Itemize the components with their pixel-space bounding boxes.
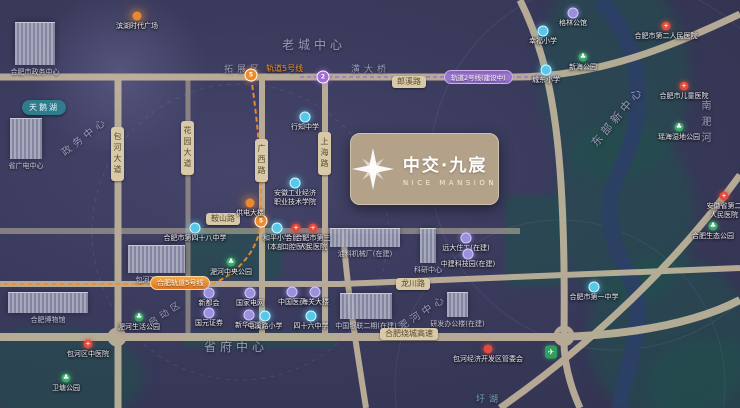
hospital-icon[interactable]: + [84, 340, 93, 349]
commercial-icon[interactable] [246, 199, 255, 208]
building-illustration: 中国银联二期(在建) [340, 293, 392, 319]
building-label: 合肥市政务中心 [11, 67, 60, 77]
residential-icon[interactable] [245, 288, 256, 299]
building-label: 合肥博物馆 [31, 315, 66, 325]
park-icon[interactable]: ♣ [709, 222, 718, 231]
compass-star-icon [352, 148, 394, 190]
poi-label: 淝河中央公园 [210, 268, 252, 277]
road-name-tag: 合肥绕城高速 [380, 328, 438, 340]
lake-label: 天鹅湖 [22, 100, 66, 115]
poi-label: 格林公馆 [559, 19, 587, 28]
building-illustration: 合肥市政务中心 [15, 22, 55, 65]
road-name-tag-vertical: 广西路 [255, 139, 268, 182]
building-illustration: 包河万达广场 [128, 245, 185, 273]
area-label: 圩湖 [476, 392, 502, 405]
school-icon[interactable] [541, 65, 552, 76]
poi-label: 卫塘公园 [52, 384, 80, 393]
school-icon[interactable] [300, 112, 311, 123]
school-icon[interactable] [538, 26, 549, 37]
park-icon[interactable]: ♣ [135, 313, 144, 322]
metro-station-icon[interactable]: 5 [245, 69, 258, 82]
park-icon[interactable]: ♣ [227, 258, 236, 267]
poi-label: 瑶海湿地公园 [658, 133, 700, 142]
road-name-tag-vertical: 花园大道 [181, 121, 194, 175]
park-icon[interactable]: ♣ [675, 123, 684, 132]
poi-label: 包河经济开发区管委会 [453, 355, 523, 364]
building-illustration: 合肥博物馆 [8, 292, 88, 313]
school-icon[interactable] [290, 178, 301, 189]
residential-icon[interactable] [204, 288, 215, 299]
school-icon[interactable] [589, 282, 600, 293]
poi-label: 行知中学 [291, 123, 319, 132]
poi-label: 合肥市第三人民医院 [296, 234, 331, 252]
poi-label: 滨湖时代广场 [116, 22, 158, 31]
commercial-icon[interactable] [133, 12, 142, 21]
poi-label: 国元证券 [195, 319, 223, 328]
poi-label: 合肥市儿童医院 [660, 92, 709, 101]
poi-label: 合肥市第四十八中学 [164, 234, 227, 243]
building-label: 研发办公楼(在建) [430, 319, 484, 329]
building-label: 油料机械厂(在建) [338, 249, 392, 259]
hospital-icon[interactable]: + [680, 82, 689, 91]
sign-icon[interactable]: ✈ [545, 346, 557, 359]
building-label: 科研中心 [414, 265, 442, 275]
residential-icon[interactable] [463, 249, 474, 260]
hospital-icon[interactable]: + [720, 192, 729, 201]
poi-label: 中建科技园(在建) [441, 260, 495, 269]
poi-label: 合肥生态公园 [692, 232, 734, 241]
road-name-tag-vertical: 上海路 [318, 132, 331, 175]
location-map: 中交·九宸 NICE MANSION 天鹅湖 老城中心拓展区潢大桥政务中心省府中… [0, 0, 740, 408]
poi-label: 淝河生活公园 [118, 323, 160, 332]
residential-icon[interactable] [204, 308, 215, 319]
project-logo-card[interactable]: 中交·九宸 NICE MANSION [350, 133, 499, 205]
poi-label: 供电大楼 [236, 209, 264, 218]
park-icon[interactable]: ♣ [579, 53, 588, 62]
residential-icon[interactable] [461, 233, 472, 244]
poi-label: 安徽工业经济职业技术学院 [274, 189, 316, 207]
poi-label: 新都会 [199, 299, 220, 308]
poi-label: 包河区中医院 [67, 350, 109, 359]
poi-label: 合肥市第二人民医院 [635, 32, 698, 41]
poi-label: 安徽省第二人民医院 [707, 202, 740, 220]
metro-station-icon[interactable]: 2 [317, 71, 330, 84]
school-icon[interactable] [306, 311, 317, 322]
gov-icon[interactable] [484, 345, 493, 354]
school-icon[interactable] [190, 223, 201, 234]
area-label: 潢大桥 [351, 62, 390, 75]
hospital-icon[interactable]: + [292, 224, 301, 233]
building-illustration: 科研中心 [420, 228, 436, 263]
residential-icon[interactable] [568, 8, 579, 19]
poi-label: 合肥市第一中学 [570, 293, 619, 302]
poi-label: 四十六中学 [294, 322, 329, 331]
poi-label: 幸福小学 [529, 37, 557, 46]
school-icon[interactable] [272, 223, 283, 234]
project-name-en: NICE MANSION [403, 179, 497, 187]
hospital-icon[interactable]: + [662, 22, 671, 31]
building-illustration: 研发办公楼(在建) [447, 292, 468, 317]
residential-icon[interactable] [310, 287, 321, 298]
poi-label: 城东小学 [532, 76, 560, 85]
road-name-tag: 龙川路 [396, 278, 430, 290]
road-name-tag: 鞍山路 [206, 213, 240, 225]
area-label: 老城中心 [282, 36, 346, 53]
metro-line-capsule: 合肥轨道5号线 [150, 276, 210, 290]
building-illustration: 省广电中心 [10, 118, 42, 159]
residential-icon[interactable] [244, 310, 255, 321]
poi-label: 海关大楼 [301, 298, 329, 307]
poi-label: 国家电网 [236, 299, 264, 308]
road-name-tag-vertical: 包河大道 [111, 127, 124, 181]
project-name-cn: 中交·九宸 [403, 151, 497, 176]
school-icon[interactable] [260, 311, 271, 322]
road-name-tag: 郎溪路 [392, 76, 426, 88]
hospital-icon[interactable]: + [309, 224, 318, 233]
poi-label: 新海公园 [569, 63, 597, 72]
poi-label: 屯溪路小学 [248, 322, 283, 331]
metro-line-capsule: 轨道2号线(建设中) [444, 70, 513, 84]
metro-line-label: 轨道5号线 [266, 63, 303, 74]
park-icon[interactable]: ♣ [62, 374, 71, 383]
residential-icon[interactable] [287, 287, 298, 298]
area-label: 省府中心 [204, 338, 268, 355]
building-label: 省广电中心 [9, 161, 44, 171]
building-illustration: 油料机械厂(在建) [330, 228, 400, 247]
